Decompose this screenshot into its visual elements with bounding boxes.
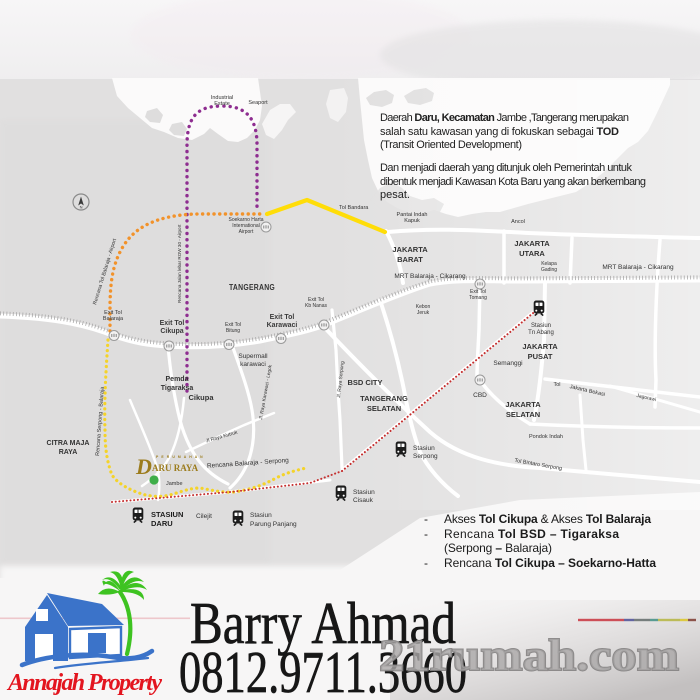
svg-text:CBD: CBD — [473, 392, 487, 399]
svg-text:Karawaci: Karawaci — [267, 322, 298, 329]
svg-text:21rumah.com: 21rumah.com — [379, 631, 679, 680]
svg-text:Supermall: Supermall — [238, 353, 268, 360]
svg-text:SELATAN: SELATAN — [506, 410, 540, 419]
svg-text:pesat.: pesat. — [380, 189, 410, 201]
svg-text:Kapuk: Kapuk — [404, 218, 420, 224]
svg-text:P E R U M A H A N: P E R U M A H A N — [156, 455, 204, 459]
svg-text:Exit Tol: Exit Tol — [270, 314, 295, 321]
svg-text:Estate: Estate — [214, 101, 230, 107]
svg-text:TANGERANG: TANGERANG — [360, 394, 408, 403]
svg-text:Serpong: Serpong — [413, 453, 438, 460]
svg-text:Ancol: Ancol — [511, 219, 525, 225]
svg-text:Tol: Tol — [553, 382, 560, 388]
svg-text:Tigaraksa: Tigaraksa — [161, 385, 194, 392]
svg-text:Dan menjadi daerah yang ditunj: Dan menjadi daerah yang ditunjuk oleh Pe… — [380, 162, 633, 174]
svg-text:Kb Nanas: Kb Nanas — [305, 303, 327, 309]
svg-text:Daerah Daru, Kecamatan Jambe ,: Daerah Daru, Kecamatan Jambe ,Tangerang … — [380, 112, 629, 124]
svg-text:Airport: Airport — [239, 229, 254, 235]
svg-text:-: - — [424, 512, 428, 526]
svg-text:Parung Panjang: Parung Panjang — [250, 521, 297, 528]
svg-text:DARU: DARU — [151, 519, 173, 528]
svg-text:JAKARTA: JAKARTA — [522, 342, 558, 351]
svg-text:-: - — [424, 556, 428, 570]
svg-text:Tol Bandara: Tol Bandara — [339, 205, 369, 211]
svg-text:Stasiun: Stasiun — [353, 489, 375, 496]
svg-text:-: - — [424, 527, 428, 541]
svg-text:JAKARTA: JAKARTA — [505, 400, 541, 409]
svg-text:PUSAT: PUSAT — [528, 352, 553, 361]
svg-text:(Transit Oriented Development): (Transit Oriented Development) — [380, 139, 522, 151]
svg-text:TANGERANG: TANGERANG — [229, 283, 275, 292]
svg-text:Tomang: Tomang — [469, 295, 487, 301]
svg-text:BARAT: BARAT — [397, 255, 423, 264]
svg-text:(Serpong – Balaraja): (Serpong – Balaraja) — [444, 541, 552, 555]
svg-text:JAKARTA: JAKARTA — [392, 245, 428, 254]
svg-text:Jeruk: Jeruk — [417, 310, 430, 316]
svg-text:salah satu kawasan yang di fok: salah satu kawasan yang di fokuskan seba… — [380, 126, 619, 138]
svg-text:Stasiun: Stasiun — [413, 445, 435, 452]
svg-text:Semanggi: Semanggi — [493, 360, 522, 367]
svg-text:CITRA MAJA: CITRA MAJA — [47, 440, 90, 447]
svg-text:Stasiun: Stasiun — [250, 512, 272, 519]
svg-text:Gading: Gading — [541, 267, 557, 273]
svg-text:Cisauk: Cisauk — [353, 497, 374, 504]
svg-text:Jambe: Jambe — [166, 481, 183, 487]
svg-text:Akses Tol Cikupa & Akses Tol B: Akses Tol Cikupa & Akses Tol Balaraja — [444, 512, 651, 526]
svg-text:SELATAN: SELATAN — [367, 404, 401, 413]
svg-text:Annajah Property: Annajah Property — [6, 670, 162, 696]
svg-text:MRT Balaraja - Cikarang: MRT Balaraja - Cikarang — [602, 264, 674, 271]
svg-text:STASIUN: STASIUN — [151, 510, 183, 519]
svg-text:Rencana Jalan lebar ROW 30 - A: Rencana Jalan lebar ROW 30 - Airport — [177, 224, 182, 303]
svg-text:Balaraja: Balaraja — [103, 316, 124, 322]
svg-text:Bitung: Bitung — [226, 328, 240, 334]
svg-text:Pemda: Pemda — [166, 376, 189, 383]
svg-text:Rencana Tol Cikupa – Soekarno-: Rencana Tol Cikupa – Soekarno-Hatta — [444, 556, 656, 570]
svg-text:dibentuk menjadi Kawasan Kota: dibentuk menjadi Kawasan Kota Baru yang … — [380, 176, 646, 188]
svg-text:ARU RAYA: ARU RAYA — [152, 463, 199, 473]
svg-text:UTARA: UTARA — [519, 249, 545, 258]
svg-text:MRT Balaraja - Cikarang: MRT Balaraja - Cikarang — [394, 273, 466, 280]
svg-text:Exit Tol: Exit Tol — [160, 320, 185, 327]
svg-text:karawaci: karawaci — [240, 361, 266, 368]
svg-text:N: N — [80, 205, 83, 210]
svg-text:Rencana Tol BSD – Tigaraksa: Rencana Tol BSD – Tigaraksa — [444, 527, 619, 541]
svg-text:D: D — [135, 454, 152, 479]
svg-text:Stasiun: Stasiun — [531, 323, 551, 329]
svg-text:Cikupa: Cikupa — [188, 393, 214, 402]
svg-text:Tn Abang: Tn Abang — [528, 330, 554, 336]
svg-text:Cilejit: Cilejit — [196, 513, 212, 520]
svg-text:Pondok Indah: Pondok Indah — [529, 434, 563, 440]
svg-text:BSD CITY: BSD CITY — [347, 378, 382, 387]
svg-text:Cikupa: Cikupa — [160, 328, 183, 335]
svg-text:RAYA: RAYA — [59, 449, 78, 456]
svg-text:Seaport: Seaport — [248, 100, 268, 106]
svg-text:JAKARTA: JAKARTA — [514, 239, 550, 248]
